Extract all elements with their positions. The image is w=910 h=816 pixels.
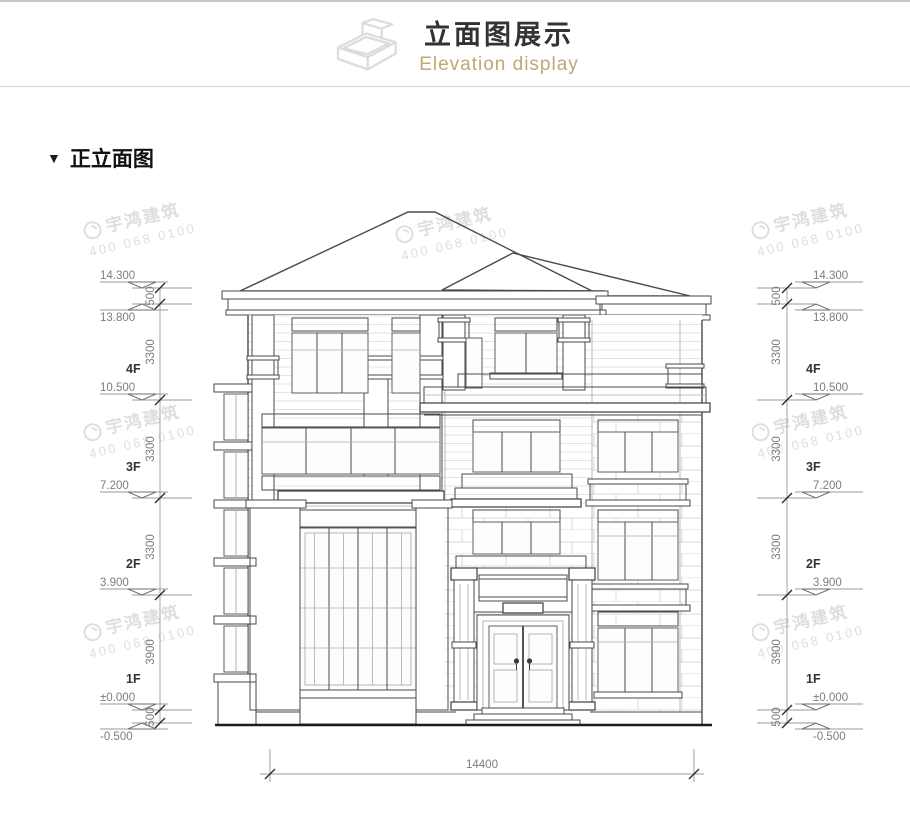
dentil-band-right [600, 304, 706, 315]
span-label: 3300 [145, 339, 157, 365]
floor-label: 3F [126, 460, 141, 474]
level-label: 10.500 [100, 382, 135, 394]
secondary-roof-plane [442, 253, 690, 296]
entry-awning-fascia [451, 499, 581, 507]
floor-label: 4F [126, 362, 141, 376]
span-label: 3300 [771, 339, 783, 365]
floor-label: 1F [806, 672, 821, 686]
building-elevation [214, 212, 712, 725]
level-label: 14.300 [100, 270, 135, 282]
span-label: 500 [145, 286, 157, 305]
entrance-steps [466, 708, 580, 725]
span-label: 3900 [771, 639, 783, 665]
level-label: 7.200 [813, 480, 842, 492]
terrace-door [466, 338, 482, 388]
floor-label: 2F [806, 557, 821, 571]
level-label: 14.300 [813, 270, 848, 282]
span-label: 3900 [145, 639, 157, 665]
level-label: 13.800 [100, 312, 135, 324]
level-label: ±0.000 [100, 692, 135, 704]
elevation-drawing: 14.300 13.800 10.500 7.200 3.900 ±0.000 … [0, 2, 910, 816]
level-label: -0.500 [813, 731, 846, 743]
porch-pillar-right [569, 568, 595, 710]
tall-window-left [300, 510, 416, 724]
section-title-label: 正立面图 [70, 143, 154, 173]
level-label: -0.500 [100, 731, 133, 743]
door-knob-left [514, 658, 519, 663]
door-knob-right [527, 658, 532, 663]
span-label: 500 [145, 707, 157, 726]
span-label: 3300 [145, 534, 157, 560]
span-label: 3300 [145, 436, 157, 462]
level-label: 13.800 [813, 312, 848, 324]
dimension-column-right: 14.300 13.800 10.500 7.200 3.900 ±0.000 … [757, 270, 863, 743]
entrance-porch [451, 568, 595, 725]
span-label: 3300 [771, 534, 783, 560]
windows-3f-left [262, 414, 444, 506]
entry-sign-plate [503, 603, 543, 613]
floor-label: 1F [126, 672, 141, 686]
page: 立面图展示 Elevation display ▼ 正立面图 宇鸿建筑400 0… [0, 0, 910, 814]
span-label: 500 [771, 286, 783, 305]
level-label: ±0.000 [813, 692, 848, 704]
span-label: 3300 [771, 436, 783, 462]
main-hip-roof [240, 212, 690, 296]
dentil-band [228, 299, 602, 310]
floor-label: 3F [806, 460, 821, 474]
level-label: 7.200 [100, 480, 129, 492]
overall-width-label: 14400 [466, 759, 498, 771]
entrance-double-door [477, 615, 569, 710]
level-label: 3.900 [813, 577, 842, 589]
level-label: 3.900 [100, 577, 129, 589]
level-label: 10.500 [813, 382, 848, 394]
floor-label: 2F [126, 557, 141, 571]
dimension-column-left: 14.300 13.800 10.500 7.200 3.900 ±0.000 … [100, 270, 192, 743]
section-title: ▼ 正立面图 [47, 143, 154, 173]
overall-width-dimension: 14400 [260, 749, 704, 782]
triangle-down-icon: ▼ [47, 151, 61, 165]
base-panel [300, 698, 416, 724]
span-label: 500 [771, 707, 783, 726]
floor-label: 4F [806, 362, 821, 376]
porch-pillar-left [451, 568, 477, 710]
